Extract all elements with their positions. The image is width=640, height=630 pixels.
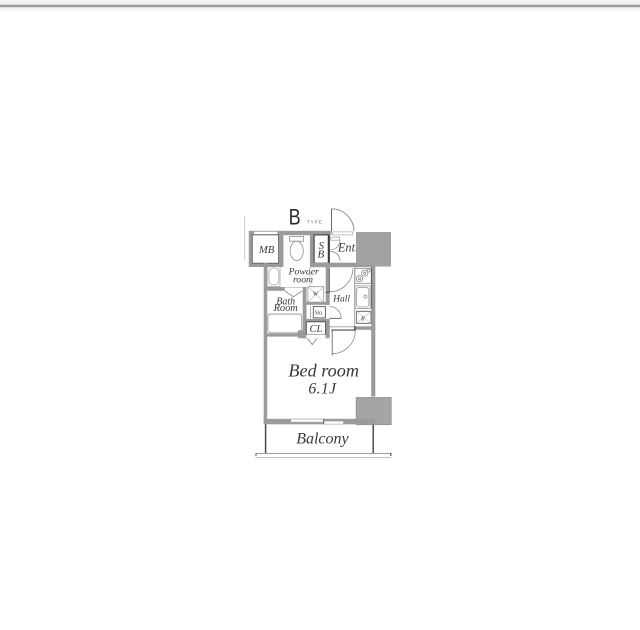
svg-text:CL: CL (309, 324, 322, 335)
svg-text:B: B (318, 249, 325, 261)
svg-text:MB: MB (258, 244, 275, 256)
svg-text:Balcony: Balcony (296, 431, 349, 448)
svg-text:Sto.: Sto. (315, 310, 324, 316)
svg-text:B: B (289, 205, 301, 230)
svg-text:6.1J: 6.1J (308, 381, 337, 398)
svg-text:Bed room: Bed room (288, 360, 359, 380)
svg-text:Room: Room (273, 303, 299, 314)
svg-text:W: W (313, 290, 319, 297)
svg-text:R: R (360, 316, 365, 322)
svg-text:Hall: Hall (332, 295, 350, 305)
svg-text:TYPE: TYPE (307, 220, 323, 225)
